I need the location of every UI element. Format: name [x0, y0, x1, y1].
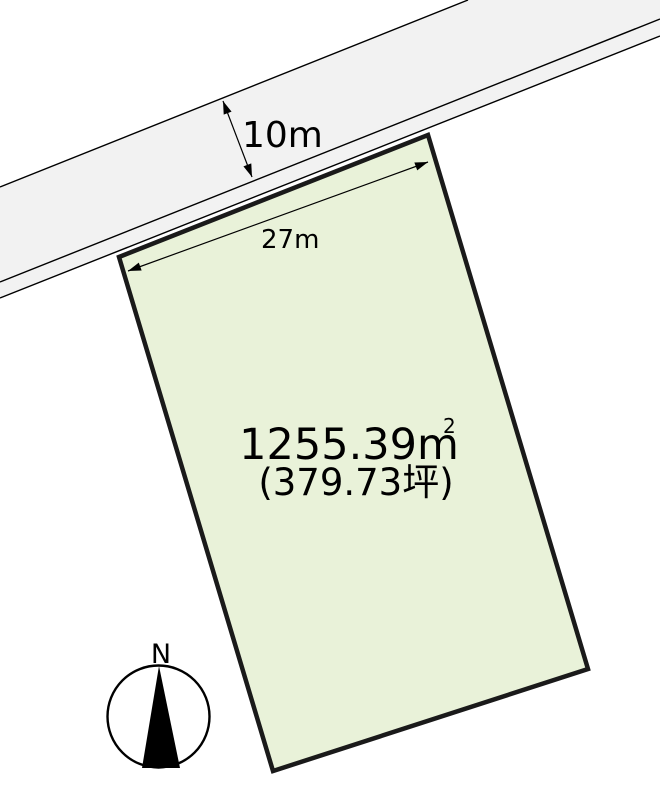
land-plot-diagram-page: 10m 27m 1255.39m 2 (379.73坪) N [0, 0, 660, 808]
frontage-label: 27m [261, 225, 319, 255]
land-plot-diagram: 10m 27m 1255.39m 2 (379.73坪) N [0, 0, 660, 808]
area-tsubo-label: (379.73坪) [258, 461, 453, 504]
area-label-group: 1255.39m 2 (379.73坪) [239, 414, 459, 504]
road-width-label: 10m [242, 115, 323, 156]
area-m2-superscript: 2 [443, 414, 456, 438]
compass-north-label: N [151, 639, 171, 670]
